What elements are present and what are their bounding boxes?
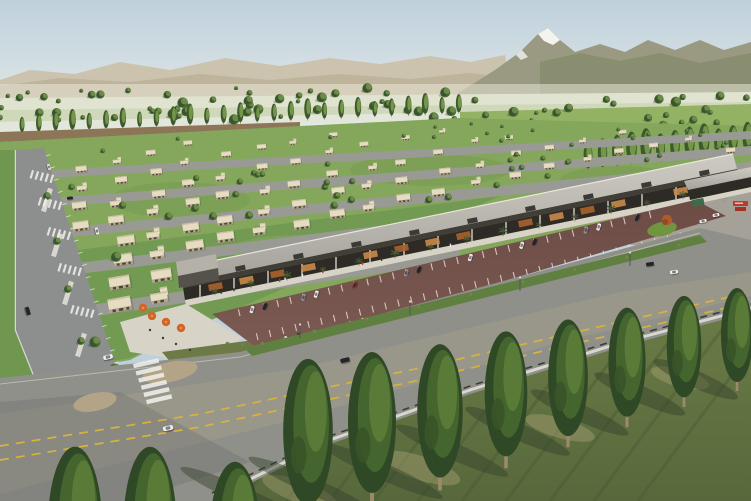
villa — [433, 149, 444, 156]
villa — [287, 180, 301, 189]
cafe-umbrella — [139, 304, 147, 312]
villa — [649, 143, 659, 150]
villa — [257, 144, 267, 151]
ornamental-red-tree-shade — [662, 219, 668, 225]
pedestrian — [284, 278, 285, 281]
villa — [72, 201, 88, 212]
cafe-table — [162, 337, 164, 339]
villa — [152, 189, 167, 199]
light-pole-lamp — [519, 276, 521, 278]
median-shrub — [676, 243, 680, 247]
villa — [75, 165, 87, 173]
villa — [326, 170, 339, 179]
cafe-table — [149, 329, 151, 331]
pedestrian — [322, 270, 323, 273]
villa — [726, 147, 737, 154]
pedestrian — [233, 288, 234, 291]
cafe-umbrella — [162, 318, 170, 326]
cafe-table — [189, 349, 191, 351]
rendering-canvas — [0, 0, 751, 501]
villa — [183, 140, 193, 146]
light-pole-lamp — [629, 251, 631, 253]
villa — [221, 151, 232, 158]
pedestrian — [381, 258, 382, 261]
foreground-poplar — [283, 359, 333, 501]
monument-sign-text-bar — [735, 203, 743, 204]
monument-sign-red-lower — [735, 207, 746, 211]
villa — [544, 162, 556, 170]
villa — [257, 163, 269, 171]
shrub — [240, 343, 244, 347]
pedestrian — [279, 279, 280, 282]
light-pole-lamp — [409, 300, 411, 302]
villa — [614, 148, 625, 155]
villa — [329, 208, 346, 219]
villa — [509, 171, 522, 180]
villa — [432, 188, 447, 198]
shrub — [226, 342, 230, 346]
pedestrian — [450, 244, 451, 247]
cafe-umbrella — [148, 312, 156, 320]
pedestrian — [221, 291, 222, 294]
villa — [545, 145, 555, 152]
median-shrub — [416, 305, 420, 309]
villa — [216, 190, 231, 200]
villa — [115, 176, 129, 185]
villa — [359, 141, 369, 147]
villa — [146, 150, 157, 157]
median-shrub — [468, 293, 472, 297]
median-shrub — [312, 330, 316, 334]
median-shrub — [364, 317, 368, 321]
villa — [108, 214, 126, 226]
villa — [396, 193, 411, 203]
median-shrub — [572, 268, 576, 272]
architectural-rendering — [0, 0, 751, 501]
villa — [217, 214, 235, 226]
villa — [150, 168, 163, 176]
pedestrian — [362, 262, 363, 265]
villa — [439, 167, 452, 175]
light-pole-lamp — [299, 323, 301, 325]
villa — [395, 159, 407, 167]
pedestrian — [302, 274, 303, 277]
villa — [292, 199, 308, 210]
villa — [290, 158, 302, 166]
median-shrub — [624, 256, 628, 260]
villa — [395, 176, 409, 185]
cafe-table — [175, 343, 177, 345]
median-shrub — [260, 342, 264, 346]
cafe-umbrella — [177, 324, 185, 332]
